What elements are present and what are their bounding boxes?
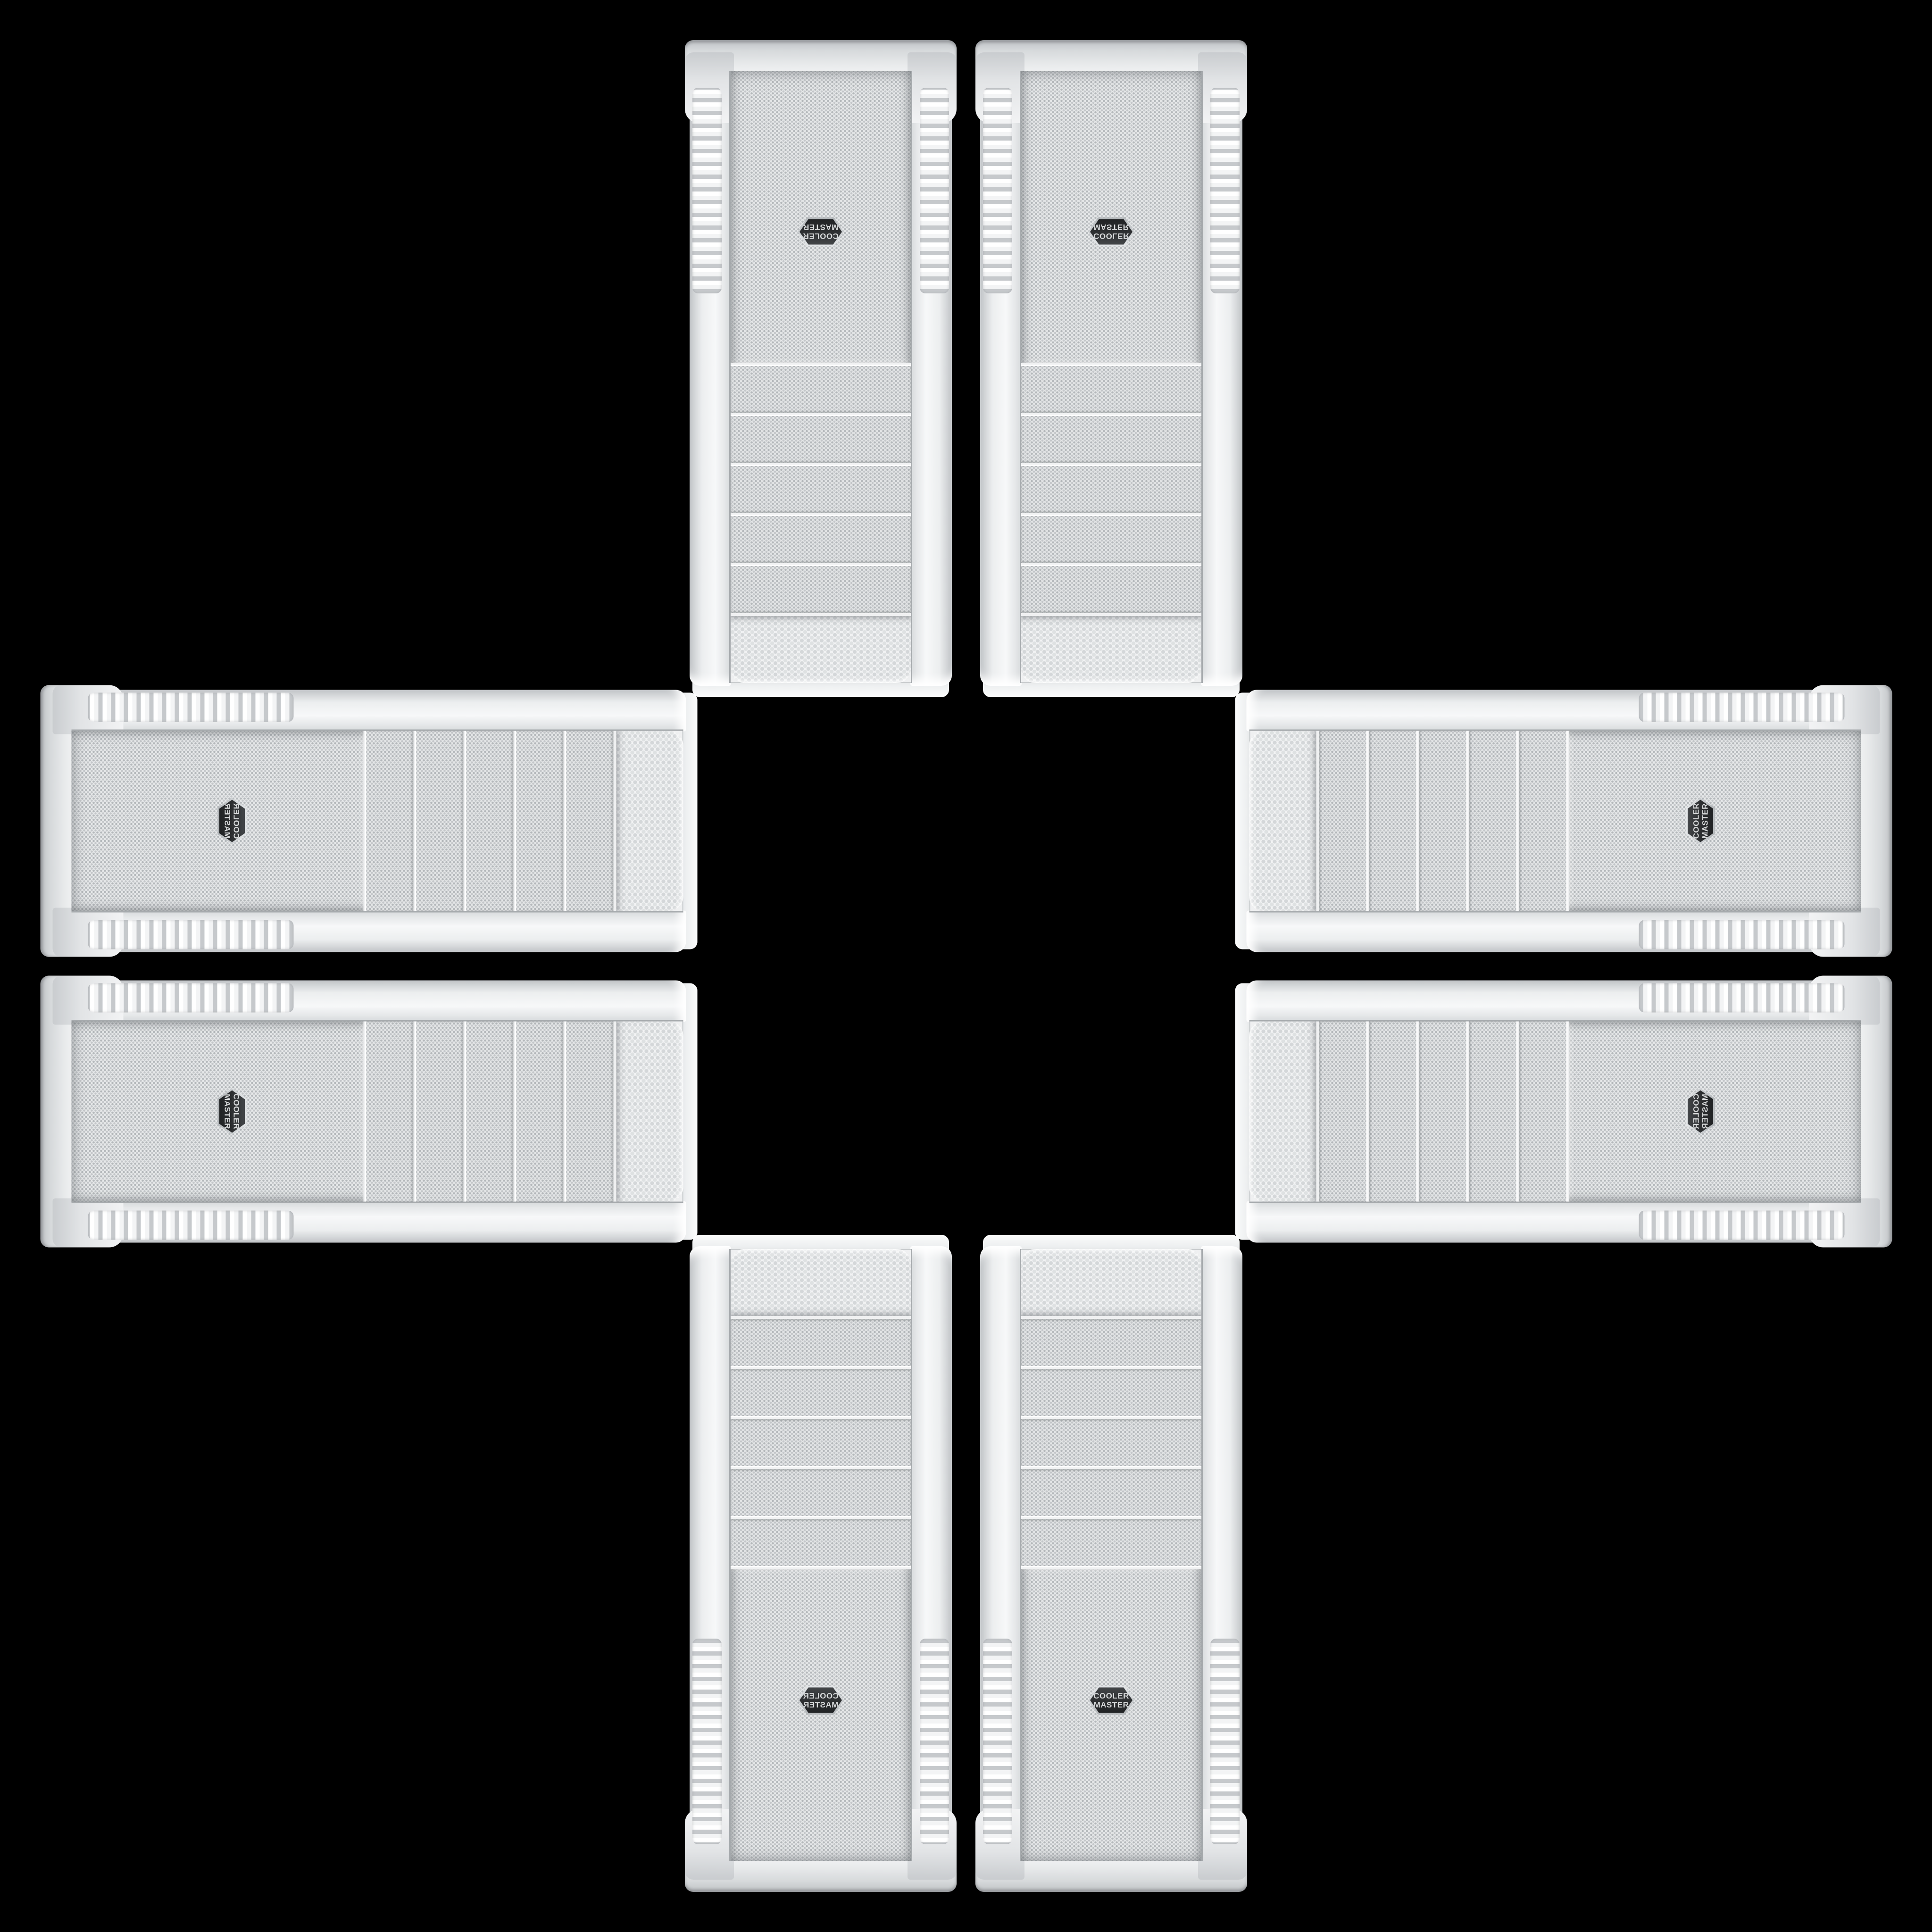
black-canvas: { "brand_badge": { "line1": "COOLER", "l… [0,0,1932,1932]
drive-bay-cover [1021,1319,1201,1366]
drive-bay-cover [731,1469,911,1516]
drive-bay-cover [1021,1369,1201,1416]
grip-ridges [1639,983,1844,1012]
cooler-master-logo: COOLER MASTER [217,1090,246,1133]
drive-bay-cover [1469,1021,1516,1201]
case-body: COOLER MASTER [1235,979,1892,1243]
intake-mesh [731,616,911,683]
pc-case-top-right: COOLER MASTER [979,40,1243,697]
main-mesh: COOLER MASTER [71,731,363,911]
drive-bay-cover [1021,1519,1201,1566]
intake-mesh [616,731,683,911]
pc-case-right-top: COOLER MASTER [1235,689,1892,953]
grip-ridges [1639,692,1844,722]
main-mesh: COOLER MASTER [71,1021,363,1201]
left-pillar [980,1246,1022,1864]
cooler-master-logo: COOLER MASTER [1090,217,1133,246]
right-pillar [1201,1246,1242,1864]
front-panel: COOLER MASTER [729,71,912,683]
right-pillar [68,690,686,731]
drive-bay-cover [1021,1419,1201,1466]
drive-bay-cover [1369,731,1416,911]
case-body: COOLER MASTER [689,40,953,697]
drive-bay-cover [1021,1469,1201,1516]
front-panel: COOLER MASTER [71,1020,683,1203]
drive-bay-cover [1319,1021,1366,1201]
intake-mesh [1021,616,1201,683]
right-pillar [690,68,731,686]
pc-case-top-left: COOLER MASTER [689,40,953,697]
badge-line2: MASTER [803,1700,839,1709]
cooler-master-logo: COOLER MASTER [1686,799,1715,842]
drive-bay-cover [1021,416,1201,463]
badge-line1: COOLER [1093,232,1129,241]
drive-bay-cover [416,1021,463,1201]
cooler-master-logo: COOLER MASTER [1090,1686,1133,1715]
grip-ridges [983,88,1012,293]
grip-ridges [1210,88,1240,293]
main-mesh: COOLER MASTER [1569,1021,1861,1201]
drive-bay-cover [731,366,911,413]
drive-bay-cover [731,1419,911,1466]
badge-line1: COOLER [232,1093,241,1129]
drive-bay-cover [1021,366,1201,413]
drive-bay-cover [466,731,513,911]
drive-bay-cover [1419,731,1466,911]
front-panel: COOLER MASTER [1020,1249,1203,1861]
cooler-master-logo: COOLER MASTER [217,799,246,842]
right-pillar [1246,690,1864,731]
left-pillar [980,68,1022,686]
drive-bay-cover [1021,516,1201,563]
badge-line2: MASTER [803,223,839,232]
case-body: COOLER MASTER [979,40,1243,697]
cooler-master-logo: COOLER MASTER [799,217,842,246]
cooler-master-badge: COOLER MASTER [1088,1684,1134,1716]
left-pillar [68,980,686,1022]
cooler-master-badge: COOLER MASTER [798,1684,844,1716]
intake-mesh [731,1249,911,1316]
left-pillar [910,68,952,686]
drive-bay-cover [416,731,463,911]
badge-line2: MASTER [1700,803,1709,839]
drive-bay-cover [1519,731,1566,911]
grip-ridges [920,88,949,293]
intake-mesh [1249,1021,1316,1201]
left-pillar [910,1246,952,1864]
badge-line2: MASTER [1094,223,1129,232]
badge-line2: MASTER [1700,1094,1709,1129]
pc-case-bottom-left: COOLER MASTER [689,1235,953,1892]
right-pillar [1246,1201,1864,1242]
badge-line2: MASTER [223,1094,232,1129]
grip-ridges [88,920,293,949]
drive-bay-cover [1469,731,1516,911]
drive-bay-cover [1319,731,1366,911]
front-panel: COOLER MASTER [729,1249,912,1861]
left-pillar [68,910,686,952]
intake-mesh [1249,731,1316,911]
pc-case-left-bottom: COOLER MASTER [40,979,697,1243]
main-mesh: COOLER MASTER [731,1569,911,1861]
grip-ridges [983,1639,1012,1844]
drive-bay-cover [731,566,911,613]
drive-bay-cover [516,1021,563,1201]
badge-line1: COOLER [1691,803,1700,839]
cooler-master-badge: COOLER MASTER [798,216,844,248]
drive-bay-cover [731,416,911,463]
main-mesh: COOLER MASTER [1569,731,1861,911]
left-pillar [1246,910,1864,952]
drive-bay-cover [566,1021,613,1201]
left-pillar [1246,980,1864,1022]
case-body: COOLER MASTER [689,1235,953,1892]
right-pillar [1201,68,1242,686]
case-body: COOLER MASTER [40,979,697,1243]
cooler-master-badge: COOLER MASTER [216,1088,248,1134]
drive-bay-cover [566,731,613,911]
grip-ridges [692,1639,722,1844]
cooler-master-badge: COOLER MASTER [216,798,248,844]
right-pillar [68,1201,686,1242]
grip-ridges [88,692,293,722]
grip-ridges [88,1210,293,1240]
intake-mesh [1021,1249,1201,1316]
case-body: COOLER MASTER [40,689,697,953]
main-mesh: COOLER MASTER [1021,1569,1201,1861]
front-panel: COOLER MASTER [1020,71,1203,683]
drive-bay-cover [731,466,911,513]
grip-ridges [1210,1639,1240,1844]
drive-bay-cover [516,731,563,911]
cooler-master-badge: COOLER MASTER [1684,1088,1716,1134]
right-pillar [690,1246,731,1864]
drive-bay-cover [366,731,413,911]
badge-line2: MASTER [1094,1700,1129,1709]
grip-ridges [692,88,722,293]
drive-bay-cover [731,516,911,563]
badge-line1: COOLER [803,1691,839,1700]
case-body: COOLER MASTER [979,1235,1243,1892]
drive-bay-cover [466,1021,513,1201]
drive-bay-cover [1519,1021,1566,1201]
front-panel: COOLER MASTER [1249,729,1861,912]
drive-bay-cover [366,1021,413,1201]
pc-case-right-bottom: COOLER MASTER [1235,979,1892,1243]
drive-bay-cover [1419,1021,1466,1201]
badge-line1: COOLER [1691,1093,1700,1129]
badge-line1: COOLER [232,803,241,839]
intake-mesh [616,1021,683,1201]
drive-bay-cover [1021,566,1201,613]
drive-bay-cover [731,1369,911,1416]
pc-case-bottom-right: COOLER MASTER [979,1235,1243,1892]
case-body: COOLER MASTER [1235,689,1892,953]
grip-ridges [88,983,293,1012]
cooler-master-logo: COOLER MASTER [799,1686,842,1715]
grip-ridges [920,1639,949,1844]
front-panel: COOLER MASTER [71,729,683,912]
cooler-master-badge: COOLER MASTER [1088,216,1134,248]
front-panel: COOLER MASTER [1249,1020,1861,1203]
drive-bay-cover [1369,1021,1416,1201]
drive-bay-cover [1021,466,1201,513]
cooler-master-badge: COOLER MASTER [1684,798,1716,844]
cooler-master-logo: COOLER MASTER [1686,1090,1715,1133]
pc-case-left-top: COOLER MASTER [40,689,697,953]
badge-line2: MASTER [223,803,232,839]
badge-line1: COOLER [803,232,839,241]
main-mesh: COOLER MASTER [1021,71,1201,363]
grip-ridges [1639,1210,1844,1240]
drive-bay-cover [731,1319,911,1366]
grip-ridges [1639,920,1844,949]
drive-bay-cover [731,1519,911,1566]
main-mesh: COOLER MASTER [731,71,911,363]
badge-line1: COOLER [1093,1691,1129,1700]
